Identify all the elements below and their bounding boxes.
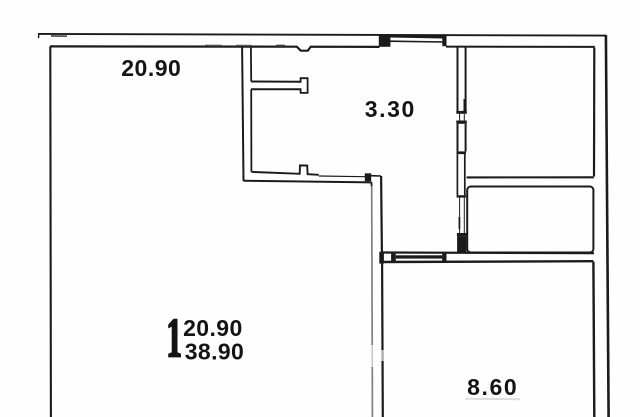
svg-text:8.60: 8.60: [467, 374, 518, 400]
svg-text:20.90: 20.90: [183, 315, 243, 341]
svg-text:20.90: 20.90: [121, 55, 181, 81]
svg-text:3.30: 3.30: [365, 96, 416, 122]
svg-text:38.90: 38.90: [185, 338, 245, 364]
